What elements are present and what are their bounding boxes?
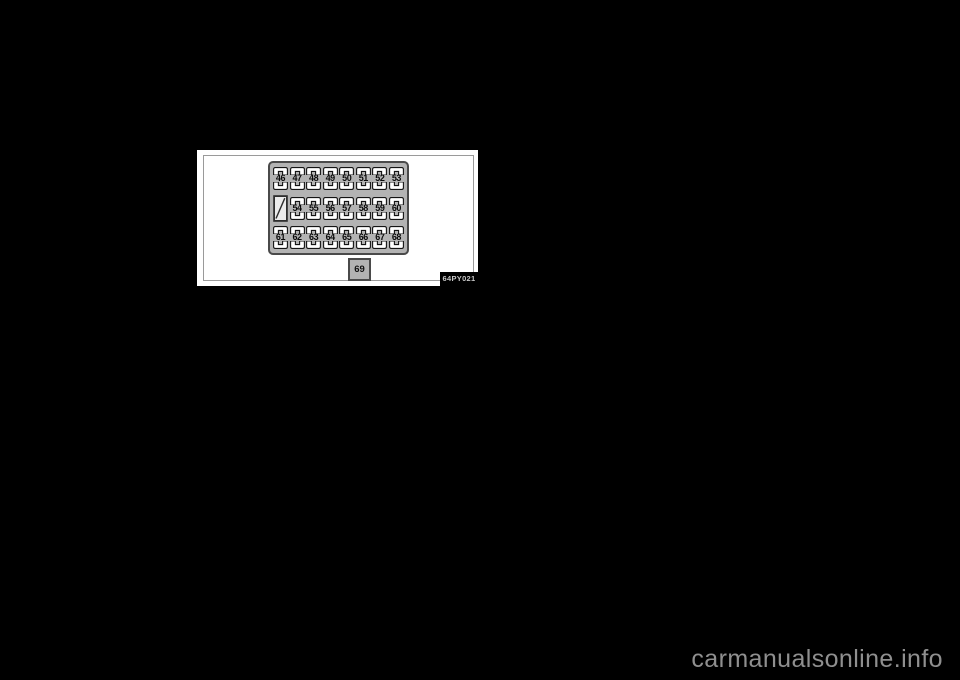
fuse-number: 46	[276, 175, 285, 182]
fuse-number: 67	[375, 234, 384, 241]
fuse-bracket-icon	[339, 212, 354, 220]
fuse-bracket-icon	[306, 182, 321, 190]
fuse-bracket-icon	[389, 241, 404, 249]
fuse-number: 64	[326, 234, 335, 241]
fuse-item: 58	[356, 197, 371, 220]
fuse-bracket-icon	[273, 182, 288, 190]
fuse-bracket-icon	[372, 241, 387, 249]
fuse-bracket-icon	[372, 182, 387, 190]
fuse-bracket-icon	[372, 212, 387, 220]
fuse-item: 53	[389, 167, 404, 190]
fuse-number: 55	[309, 205, 318, 212]
fuse-number: 51	[359, 175, 368, 182]
standalone-fuse-number: 69	[354, 264, 365, 275]
fuse-bracket-icon	[323, 182, 338, 190]
fuse-item: 48	[306, 167, 321, 190]
fuse-bracket-icon	[273, 241, 288, 249]
fuse-item: 64	[323, 226, 338, 249]
fuse-item: 54	[290, 197, 305, 220]
fuse-number: 57	[342, 205, 351, 212]
fuse-bracket-icon	[339, 241, 354, 249]
fuse-number: 66	[359, 234, 368, 241]
fuse-item: 55	[306, 197, 321, 220]
fuse-number: 54	[292, 205, 301, 212]
fuse-row: 6162636465666768	[273, 226, 404, 249]
fuse-bracket-icon	[290, 182, 305, 190]
fuse-item: 65	[339, 226, 354, 249]
fuse-number: 65	[342, 234, 351, 241]
fuse-number: 62	[292, 234, 301, 241]
fuse-bracket-icon	[306, 241, 321, 249]
fuse-bracket-icon	[356, 212, 371, 220]
fuse-number: 63	[309, 234, 318, 241]
fuse-number: 53	[392, 175, 401, 182]
fuse-number: 60	[392, 205, 401, 212]
fuse-item: 60	[389, 197, 404, 220]
fuse-row: 54555657585960	[273, 197, 404, 220]
empty-slot	[273, 197, 288, 220]
fuse-number: 49	[326, 175, 335, 182]
fuse-bracket-icon	[389, 212, 404, 220]
empty-slot-icon	[273, 195, 288, 222]
figure-code-text: 64PY021	[443, 274, 476, 283]
standalone-fuse-box: 69	[348, 258, 371, 281]
fuse-item: 52	[372, 167, 387, 190]
fuse-number: 52	[375, 175, 384, 182]
fuse-item: 68	[389, 226, 404, 249]
fuse-bracket-icon	[306, 212, 321, 220]
fuse-number: 68	[392, 234, 401, 241]
fuse-item: 46	[273, 167, 288, 190]
fuse-number: 61	[276, 234, 285, 241]
fuse-row: 4647484950515253	[273, 167, 404, 190]
figure-code-badge: 64PY021	[440, 272, 478, 286]
fuse-bracket-icon	[290, 212, 305, 220]
fuse-item: 63	[306, 226, 321, 249]
fuse-item: 62	[290, 226, 305, 249]
fuse-bracket-icon	[323, 212, 338, 220]
fuse-number: 47	[292, 175, 301, 182]
fuse-item: 51	[356, 167, 371, 190]
fuse-item: 57	[339, 197, 354, 220]
watermark-site-link[interactable]: carmanualsonline.info	[691, 645, 943, 674]
fuse-number: 59	[375, 205, 384, 212]
fuse-item: 66	[356, 226, 371, 249]
fuse-item: 56	[323, 197, 338, 220]
fuse-bracket-icon	[323, 241, 338, 249]
fuse-bracket-icon	[290, 241, 305, 249]
fuse-number: 48	[309, 175, 318, 182]
fuse-item: 50	[339, 167, 354, 190]
fuse-bracket-icon	[356, 182, 371, 190]
fuse-bracket-icon	[339, 182, 354, 190]
fuse-bracket-icon	[389, 182, 404, 190]
fuse-box-figure: 4647484950515253545556575859606162636465…	[197, 150, 478, 286]
fuse-number: 58	[359, 205, 368, 212]
fuse-bracket-icon	[356, 241, 371, 249]
fuse-number: 56	[326, 205, 335, 212]
fuse-panel: 4647484950515253545556575859606162636465…	[268, 161, 409, 255]
fuse-item: 59	[372, 197, 387, 220]
fuse-item: 49	[323, 167, 338, 190]
fuse-item: 67	[372, 226, 387, 249]
fuse-item: 47	[290, 167, 305, 190]
fuse-number: 50	[342, 175, 351, 182]
fuse-item: 61	[273, 226, 288, 249]
